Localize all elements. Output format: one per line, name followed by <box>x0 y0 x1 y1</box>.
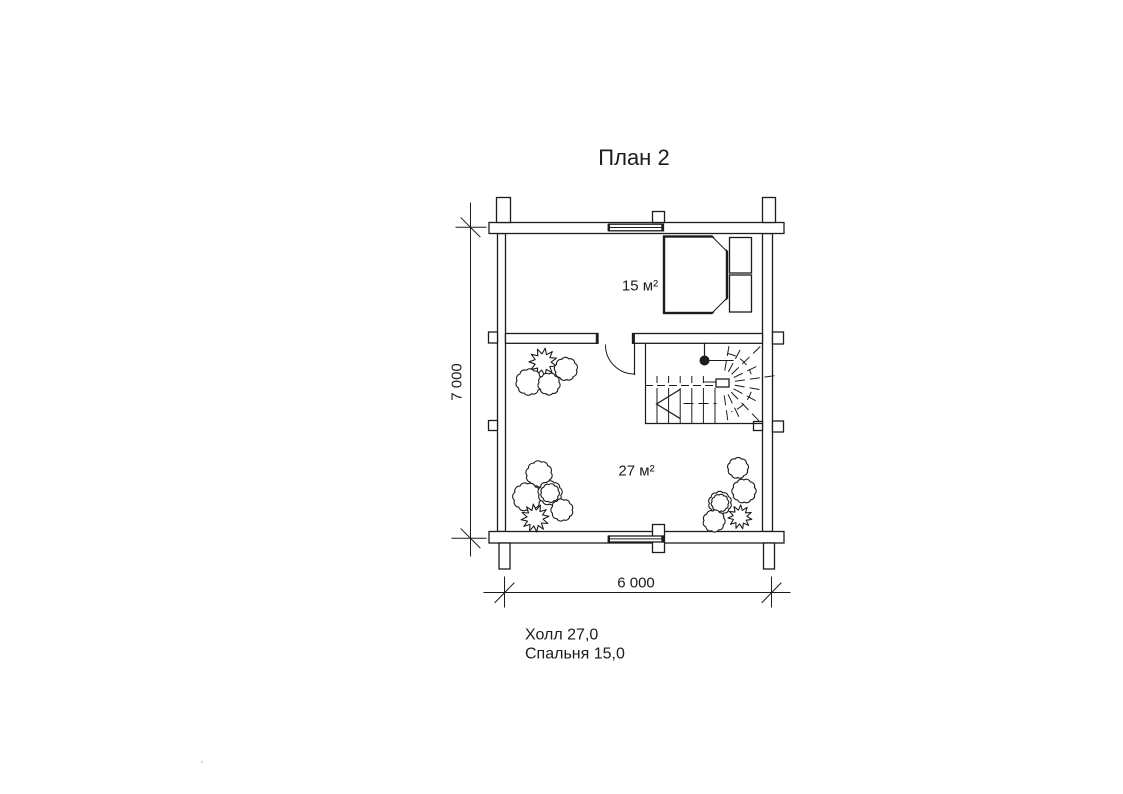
plant <box>732 479 756 503</box>
tab-right-lower <box>773 421 784 432</box>
plant-cluster-bottom-left <box>513 461 573 532</box>
corner-post-top-left <box>497 198 511 223</box>
legend-hall: Холл 27,0 <box>525 627 598 644</box>
room-label-bedroom: 15 м² <box>622 278 658 295</box>
dimension-vertical: 7 000 <box>449 203 487 556</box>
bed-pillow-2 <box>730 275 752 312</box>
winder-tread-line <box>734 366 758 378</box>
door-jamb-right <box>633 334 635 344</box>
plant-cluster-top-left <box>516 348 577 395</box>
newel-post <box>700 356 710 366</box>
winder-tread-line <box>732 392 762 423</box>
corner-post-bottom-left <box>499 543 510 569</box>
tab-left-lower <box>489 421 498 431</box>
window-top <box>608 224 664 231</box>
wall-right <box>763 234 773 532</box>
interior-wall <box>506 334 763 344</box>
tab-right-inner <box>754 422 763 431</box>
door-jamb-left <box>596 334 598 344</box>
interior-wall-right-segment <box>633 334 763 344</box>
bed <box>664 235 752 315</box>
dim-label-horizontal: 6 000 <box>617 575 655 592</box>
floor-plan-drawing: 7 000 6 000 План 2 15 м² 27 м² Холл 27,0… <box>0 0 1123 794</box>
staircase <box>646 343 779 423</box>
dimension-horizontal: 6 000 <box>484 575 790 608</box>
tab-right-upper <box>773 332 784 344</box>
plant <box>703 510 725 532</box>
stair-treads <box>657 377 715 424</box>
tab-left-upper <box>489 332 498 343</box>
plant <box>551 499 573 521</box>
winder-tread-line <box>724 396 728 423</box>
legend-bedroom: Спальня 15,0 <box>525 646 625 663</box>
bed-pillow-1 <box>730 238 752 274</box>
plan-title: План 2 <box>598 145 669 170</box>
corner-post-top-right <box>763 198 776 223</box>
plant <box>728 505 752 529</box>
plant <box>728 457 749 478</box>
door <box>606 343 635 374</box>
corner-post-bottom-right <box>764 543 775 569</box>
winder-tread-line <box>735 385 762 390</box>
winder-tread-line <box>728 395 740 419</box>
legend: Холл 27,0 Спальня 15,0 <box>525 627 625 663</box>
window-bottom <box>608 536 664 543</box>
bed-mattress <box>664 237 727 314</box>
page-speck <box>201 761 203 763</box>
plant <box>516 369 542 396</box>
winder-tread-line <box>734 389 758 402</box>
floor-plan-page: 7 000 6 000 План 2 15 м² 27 м² Холл 27,0… <box>0 0 1123 794</box>
plant <box>538 373 560 395</box>
door-swing-arc <box>606 345 635 374</box>
winder-tread-line <box>732 344 763 374</box>
plant-cluster-bottom-right <box>703 457 756 532</box>
dim-label-vertical: 7 000 <box>449 363 466 401</box>
room-label-hall: 27 м² <box>618 463 654 480</box>
winder-tread-line <box>729 348 742 372</box>
post-top-window <box>653 212 665 223</box>
wall-left <box>498 234 506 532</box>
interior-wall-left-segment <box>506 334 599 344</box>
winder-tread-line <box>725 344 730 371</box>
winder-center-box <box>716 379 729 387</box>
